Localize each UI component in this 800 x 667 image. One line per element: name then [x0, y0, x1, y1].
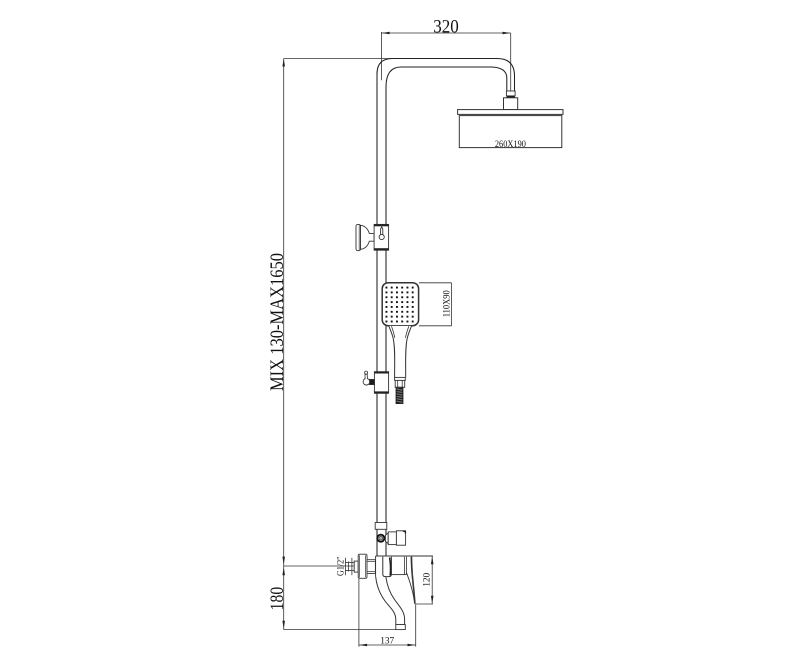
svg-text:G1/2″: G1/2″	[336, 556, 346, 576]
svg-text:320: 320	[433, 18, 459, 38]
svg-text:260X190: 260X190	[495, 139, 526, 149]
svg-text:120: 120	[422, 573, 432, 587]
svg-text:110X90: 110X90	[442, 290, 452, 317]
svg-text:137: 137	[380, 636, 394, 646]
svg-text:MIX 130-MAX1650: MIX 130-MAX1650	[268, 253, 288, 391]
svg-text:180: 180	[267, 587, 288, 611]
